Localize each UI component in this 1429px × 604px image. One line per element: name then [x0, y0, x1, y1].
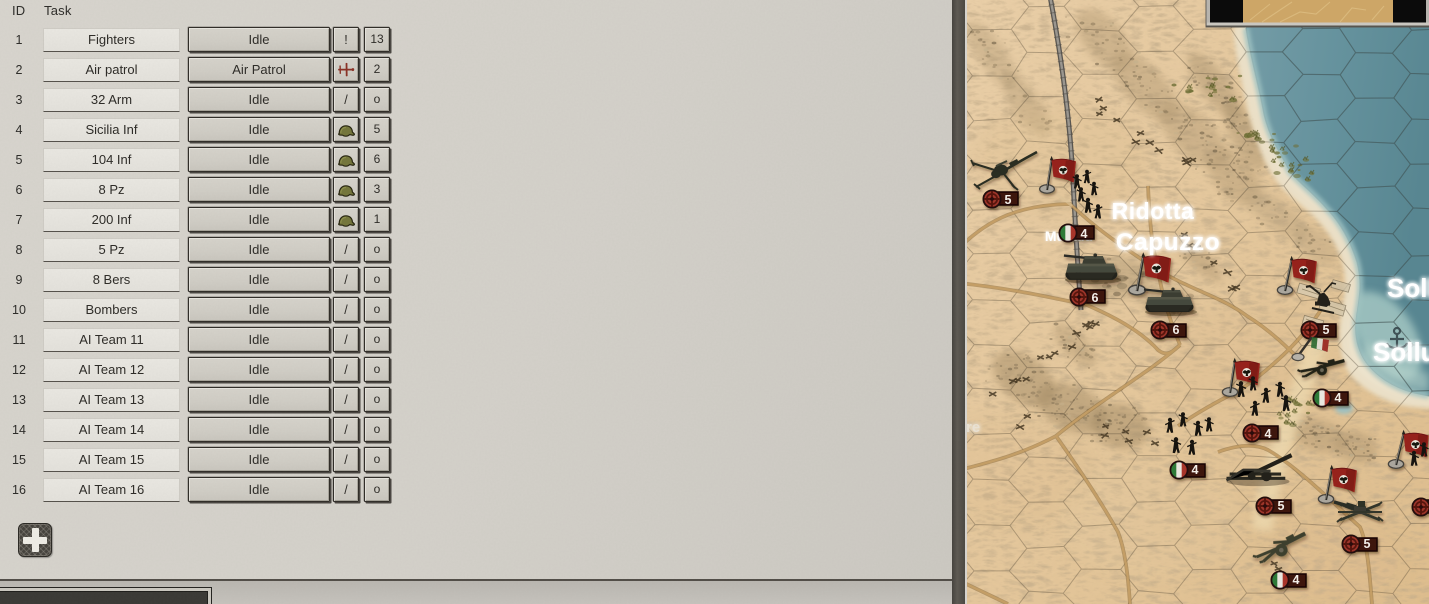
- svg-text:6: 6: [1173, 323, 1180, 337]
- svg-text:Soll: Soll: [1387, 273, 1429, 303]
- svg-text:5: 5: [1005, 193, 1012, 207]
- svg-text:6: 6: [1092, 291, 1099, 305]
- svg-text:Capuzzo: Capuzzo: [1116, 229, 1220, 256]
- svg-text:Sollu: Sollu: [1373, 337, 1429, 367]
- svg-text:re: re: [967, 419, 980, 436]
- svg-text:4: 4: [1293, 573, 1300, 587]
- svg-text:4: 4: [1081, 227, 1088, 241]
- svg-text:4: 4: [1335, 391, 1342, 405]
- svg-text:5: 5: [1323, 323, 1330, 337]
- svg-text:4: 4: [1192, 463, 1199, 477]
- svg-text:4: 4: [1265, 427, 1272, 441]
- svg-text:5: 5: [1278, 499, 1285, 513]
- svg-text:Ridotta: Ridotta: [1112, 198, 1195, 224]
- svg-text:5: 5: [1364, 537, 1371, 551]
